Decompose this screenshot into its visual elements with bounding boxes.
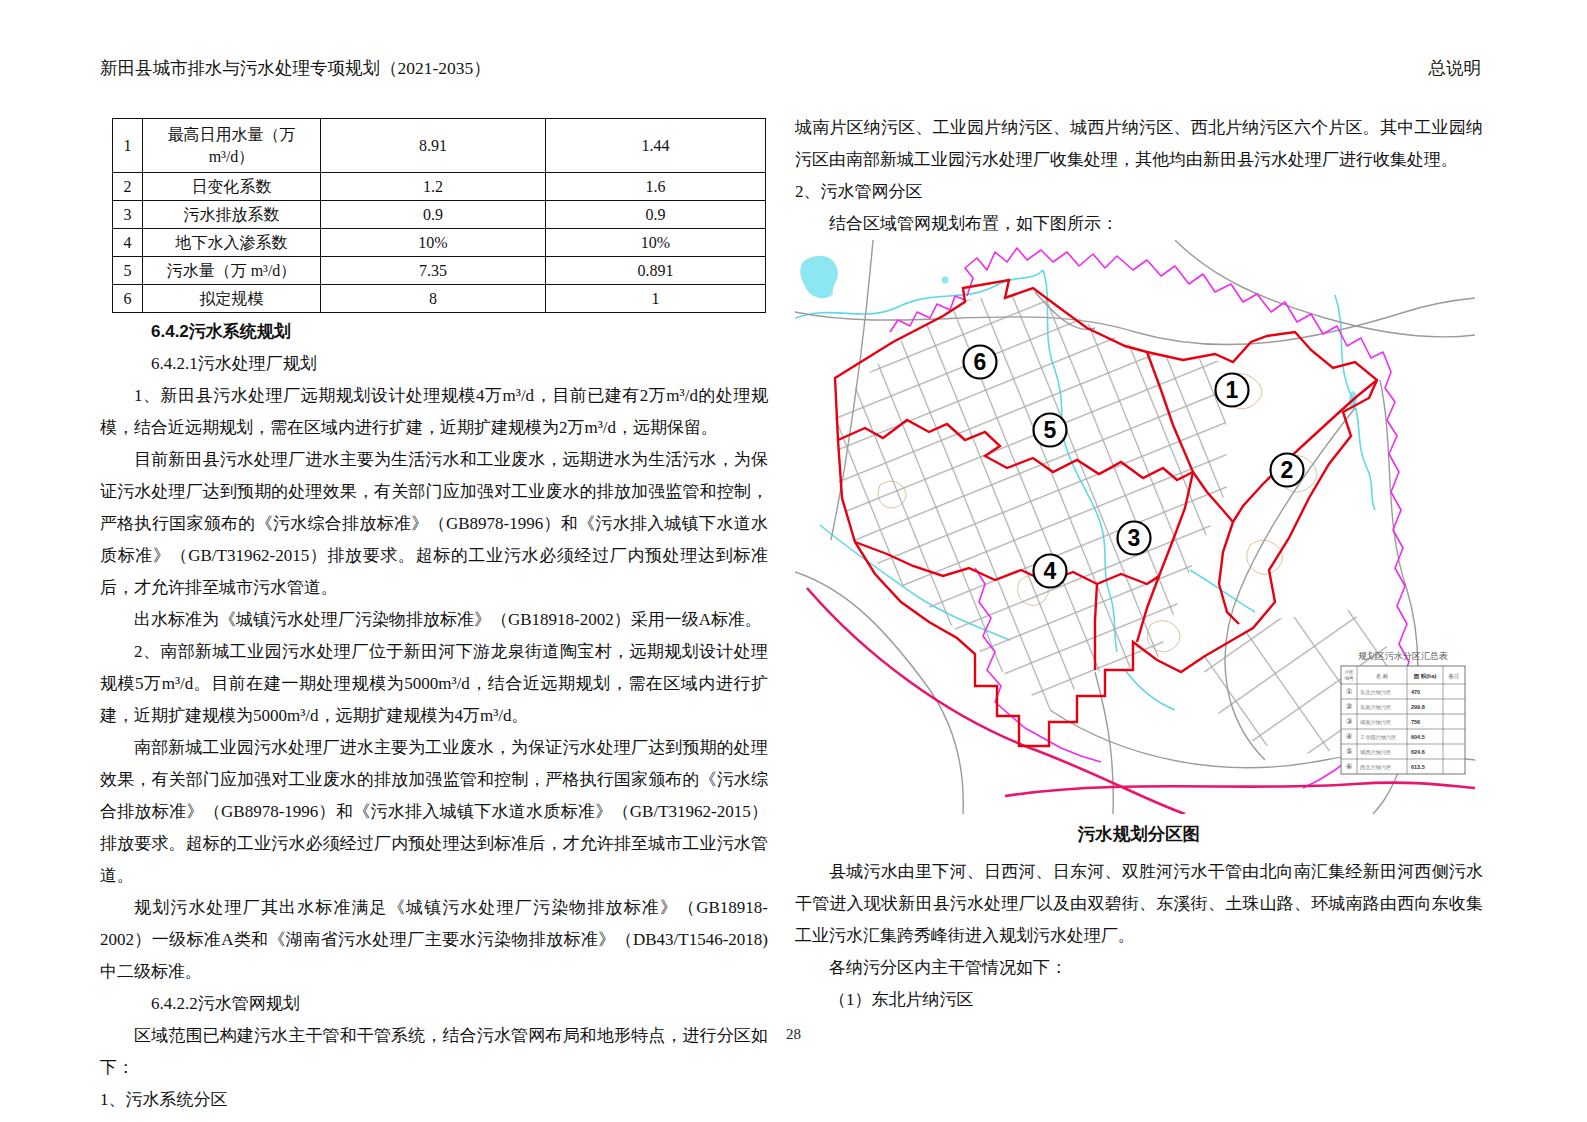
row-label: 拟定规模 xyxy=(143,285,321,313)
page-number: 28 xyxy=(0,1026,1587,1043)
svg-text:西北片纳污区: 西北片纳污区 xyxy=(1360,764,1391,771)
stream xyxy=(1125,670,1175,710)
header-right-label: 总说明 xyxy=(1429,56,1482,80)
table-row: 6 拟定规模 8 1 xyxy=(113,285,766,313)
right-column: 城南片区纳污区、工业园片纳污区、城西片纳污区、西北片纳污区六个片区。其中工业园纳… xyxy=(795,112,1483,1016)
legend-header: 片区 xyxy=(1345,669,1355,675)
svg-text:613.5: 613.5 xyxy=(1411,764,1425,770)
row-value-1: 10% xyxy=(321,229,546,257)
paragraph: 规划污水处理厂其出水标准满足《城镇污水处理厂污染物排放标准》（GB18918-2… xyxy=(100,892,768,988)
paragraph: 1、新田县污水处理厂远期规划设计处理规模4万m³/d，目前已建有2万m³/d的处… xyxy=(100,380,768,444)
svg-text:299.8: 299.8 xyxy=(1411,704,1425,710)
svg-text:604.5: 604.5 xyxy=(1411,734,1425,740)
paragraph: （1）东北片纳污区 xyxy=(795,984,1483,1016)
svg-text:3: 3 xyxy=(1128,525,1141,551)
row-value-1: 8.91 xyxy=(321,119,546,173)
left-column: 6.4.2污水系统规划 6.4.2.1污水处理厂规划 1、新田县污水处理厂远期规… xyxy=(100,316,768,1122)
svg-text:5: 5 xyxy=(1044,417,1057,443)
table-row: 3 污水排放系数 0.9 0.9 xyxy=(113,201,766,229)
pond xyxy=(942,277,949,284)
row-num: 1 xyxy=(113,119,143,173)
svg-text:6: 6 xyxy=(974,349,987,375)
lake xyxy=(800,256,838,298)
svg-text:①: ① xyxy=(1346,687,1353,696)
header-left-title: 新田县城市排水与污水处理专项规划（2021-2035） xyxy=(100,56,491,80)
sewage-planning-map: 1 2 3 4 5 6 规划区污水分区汇总表 片区 编号 名 称 面 积(h xyxy=(795,240,1475,814)
row-num: 5 xyxy=(113,257,143,285)
row-num: 4 xyxy=(113,229,143,257)
paragraph: 城南片区纳污区、工业园片纳污区、城西片纳污区、西北片纳污区六个片区。其中工业园纳… xyxy=(795,112,1483,176)
row-label: 地下水入渗系数 xyxy=(143,229,321,257)
svg-text:1: 1 xyxy=(1226,377,1239,403)
svg-text:城南片纳污区: 城南片纳污区 xyxy=(1359,719,1391,726)
svg-text:③: ③ xyxy=(1346,717,1353,726)
row-value-1: 8 xyxy=(321,285,546,313)
row-value-2: 1 xyxy=(546,285,766,313)
paragraph: 根据县区现状污水管网布局和地形特点，将新田县纳污范围分为东北片区纳污区、东南片区… xyxy=(100,1116,768,1122)
zone-marker-5: 5 xyxy=(1034,414,1067,447)
list-item: 1、污水系统分区 xyxy=(100,1084,768,1116)
row-num: 6 xyxy=(113,285,143,313)
svg-text:470: 470 xyxy=(1411,689,1420,695)
subsection-heading-6422: 6.4.2.2污水管网规划 xyxy=(100,988,768,1020)
svg-text:624.6: 624.6 xyxy=(1411,749,1425,755)
row-value-2: 0.9 xyxy=(546,201,766,229)
paragraph: 出水标准为《城镇污水处理厂污染物排放标准》（GB18918-2002）采用一级A… xyxy=(100,604,768,636)
water-parameters-table: 1 最高日用水量（万 m³/d） 8.91 1.44 2 日变化系数 1.2 1… xyxy=(112,118,766,313)
legend-table: 规划区污水分区汇总表 片区 编号 名 称 面 积(ha) 备注 ① 东北片纳污区… xyxy=(1341,651,1465,774)
legend-header: 备注 xyxy=(1449,673,1461,679)
table-row: 5 污水量（万 m³/d） 7.35 0.891 xyxy=(113,257,766,285)
row-label: 最高日用水量（万 m³/d） xyxy=(143,119,321,173)
zone-marker-4: 4 xyxy=(1034,555,1067,588)
document-page: 新田县城市排水与污水处理专项规划（2021-2035） 总说明 1 最高日用水量… xyxy=(0,0,1587,1122)
subsection-heading-6421: 6.4.2.1污水处理厂规划 xyxy=(100,348,768,380)
row-value-2: 0.891 xyxy=(546,257,766,285)
paragraph: 结合区域管网规划布置，如下图所示： xyxy=(795,208,1483,240)
legend-title: 规划区污水分区汇总表 xyxy=(1358,651,1448,661)
legend-header: 编号 xyxy=(1345,676,1355,681)
svg-text:4: 4 xyxy=(1044,558,1057,584)
row-value-2: 10% xyxy=(546,229,766,257)
row-value-1: 0.9 xyxy=(321,201,546,229)
paragraph: 2、南部新城工业园污水处理厂位于新田河下游龙泉街道陶宝村，远期规划设计处理规模5… xyxy=(100,636,768,732)
figure-caption: 污水规划分区图 xyxy=(795,818,1483,850)
list-item: 2、污水管网分区 xyxy=(795,176,1483,208)
table-row: 1 最高日用水量（万 m³/d） 8.91 1.44 xyxy=(113,119,766,173)
row-value-1: 1.2 xyxy=(321,173,546,201)
paragraph: 南部新城工业园污水处理厂进水主要为工业废水，为保证污水处理厂达到预期的处理效果，… xyxy=(100,732,768,892)
table-row: 4 地下水入渗系数 10% 10% xyxy=(113,229,766,257)
svg-text:⑥: ⑥ xyxy=(1346,762,1353,771)
row-num: 2 xyxy=(113,173,143,201)
table-row: 2 日变化系数 1.2 1.6 xyxy=(113,173,766,201)
row-value-2: 1.6 xyxy=(546,173,766,201)
row-label: 日变化系数 xyxy=(143,173,321,201)
section-heading-642: 6.4.2污水系统规划 xyxy=(100,316,768,348)
paragraph: 目前新田县污水处理厂进水主要为生活污水和工业废水，远期进水为生活污水，为保证污水… xyxy=(100,444,768,604)
svg-text:城西片纳污区: 城西片纳污区 xyxy=(1359,749,1391,756)
paragraph: 各纳污分区内主干管情况如下： xyxy=(795,952,1483,984)
paragraph: 县城污水由里下河、日西河、日东河、双胜河污水干管由北向南汇集经新田河西侧污水干管… xyxy=(795,856,1483,952)
row-num: 3 xyxy=(113,201,143,229)
svg-text:2: 2 xyxy=(1281,457,1294,483)
row-label: 污水排放系数 xyxy=(143,201,321,229)
row-label: 污水量（万 m³/d） xyxy=(143,257,321,285)
zone-marker-3: 3 xyxy=(1118,522,1151,555)
svg-text:②: ② xyxy=(1346,702,1353,711)
svg-text:东北片纳污区: 东北片纳污区 xyxy=(1360,689,1391,696)
row-value-2: 1.44 xyxy=(546,119,766,173)
legend-header: 面 积(ha) xyxy=(1413,673,1437,680)
zone-marker-2: 2 xyxy=(1271,454,1304,487)
svg-text:④: ④ xyxy=(1346,732,1353,741)
svg-text:东南片纳污区: 东南片纳污区 xyxy=(1360,704,1391,711)
legend-header: 名 称 xyxy=(1376,673,1389,679)
row-value-1: 7.35 xyxy=(321,257,546,285)
svg-text:工业园片纳污区: 工业园片纳污区 xyxy=(1360,734,1396,741)
zone-marker-6: 6 xyxy=(964,346,997,379)
zone-marker-1: 1 xyxy=(1216,374,1249,407)
svg-text:⑤: ⑤ xyxy=(1346,747,1353,756)
svg-text:756: 756 xyxy=(1411,719,1420,725)
divider-2-3 xyxy=(1219,522,1239,624)
